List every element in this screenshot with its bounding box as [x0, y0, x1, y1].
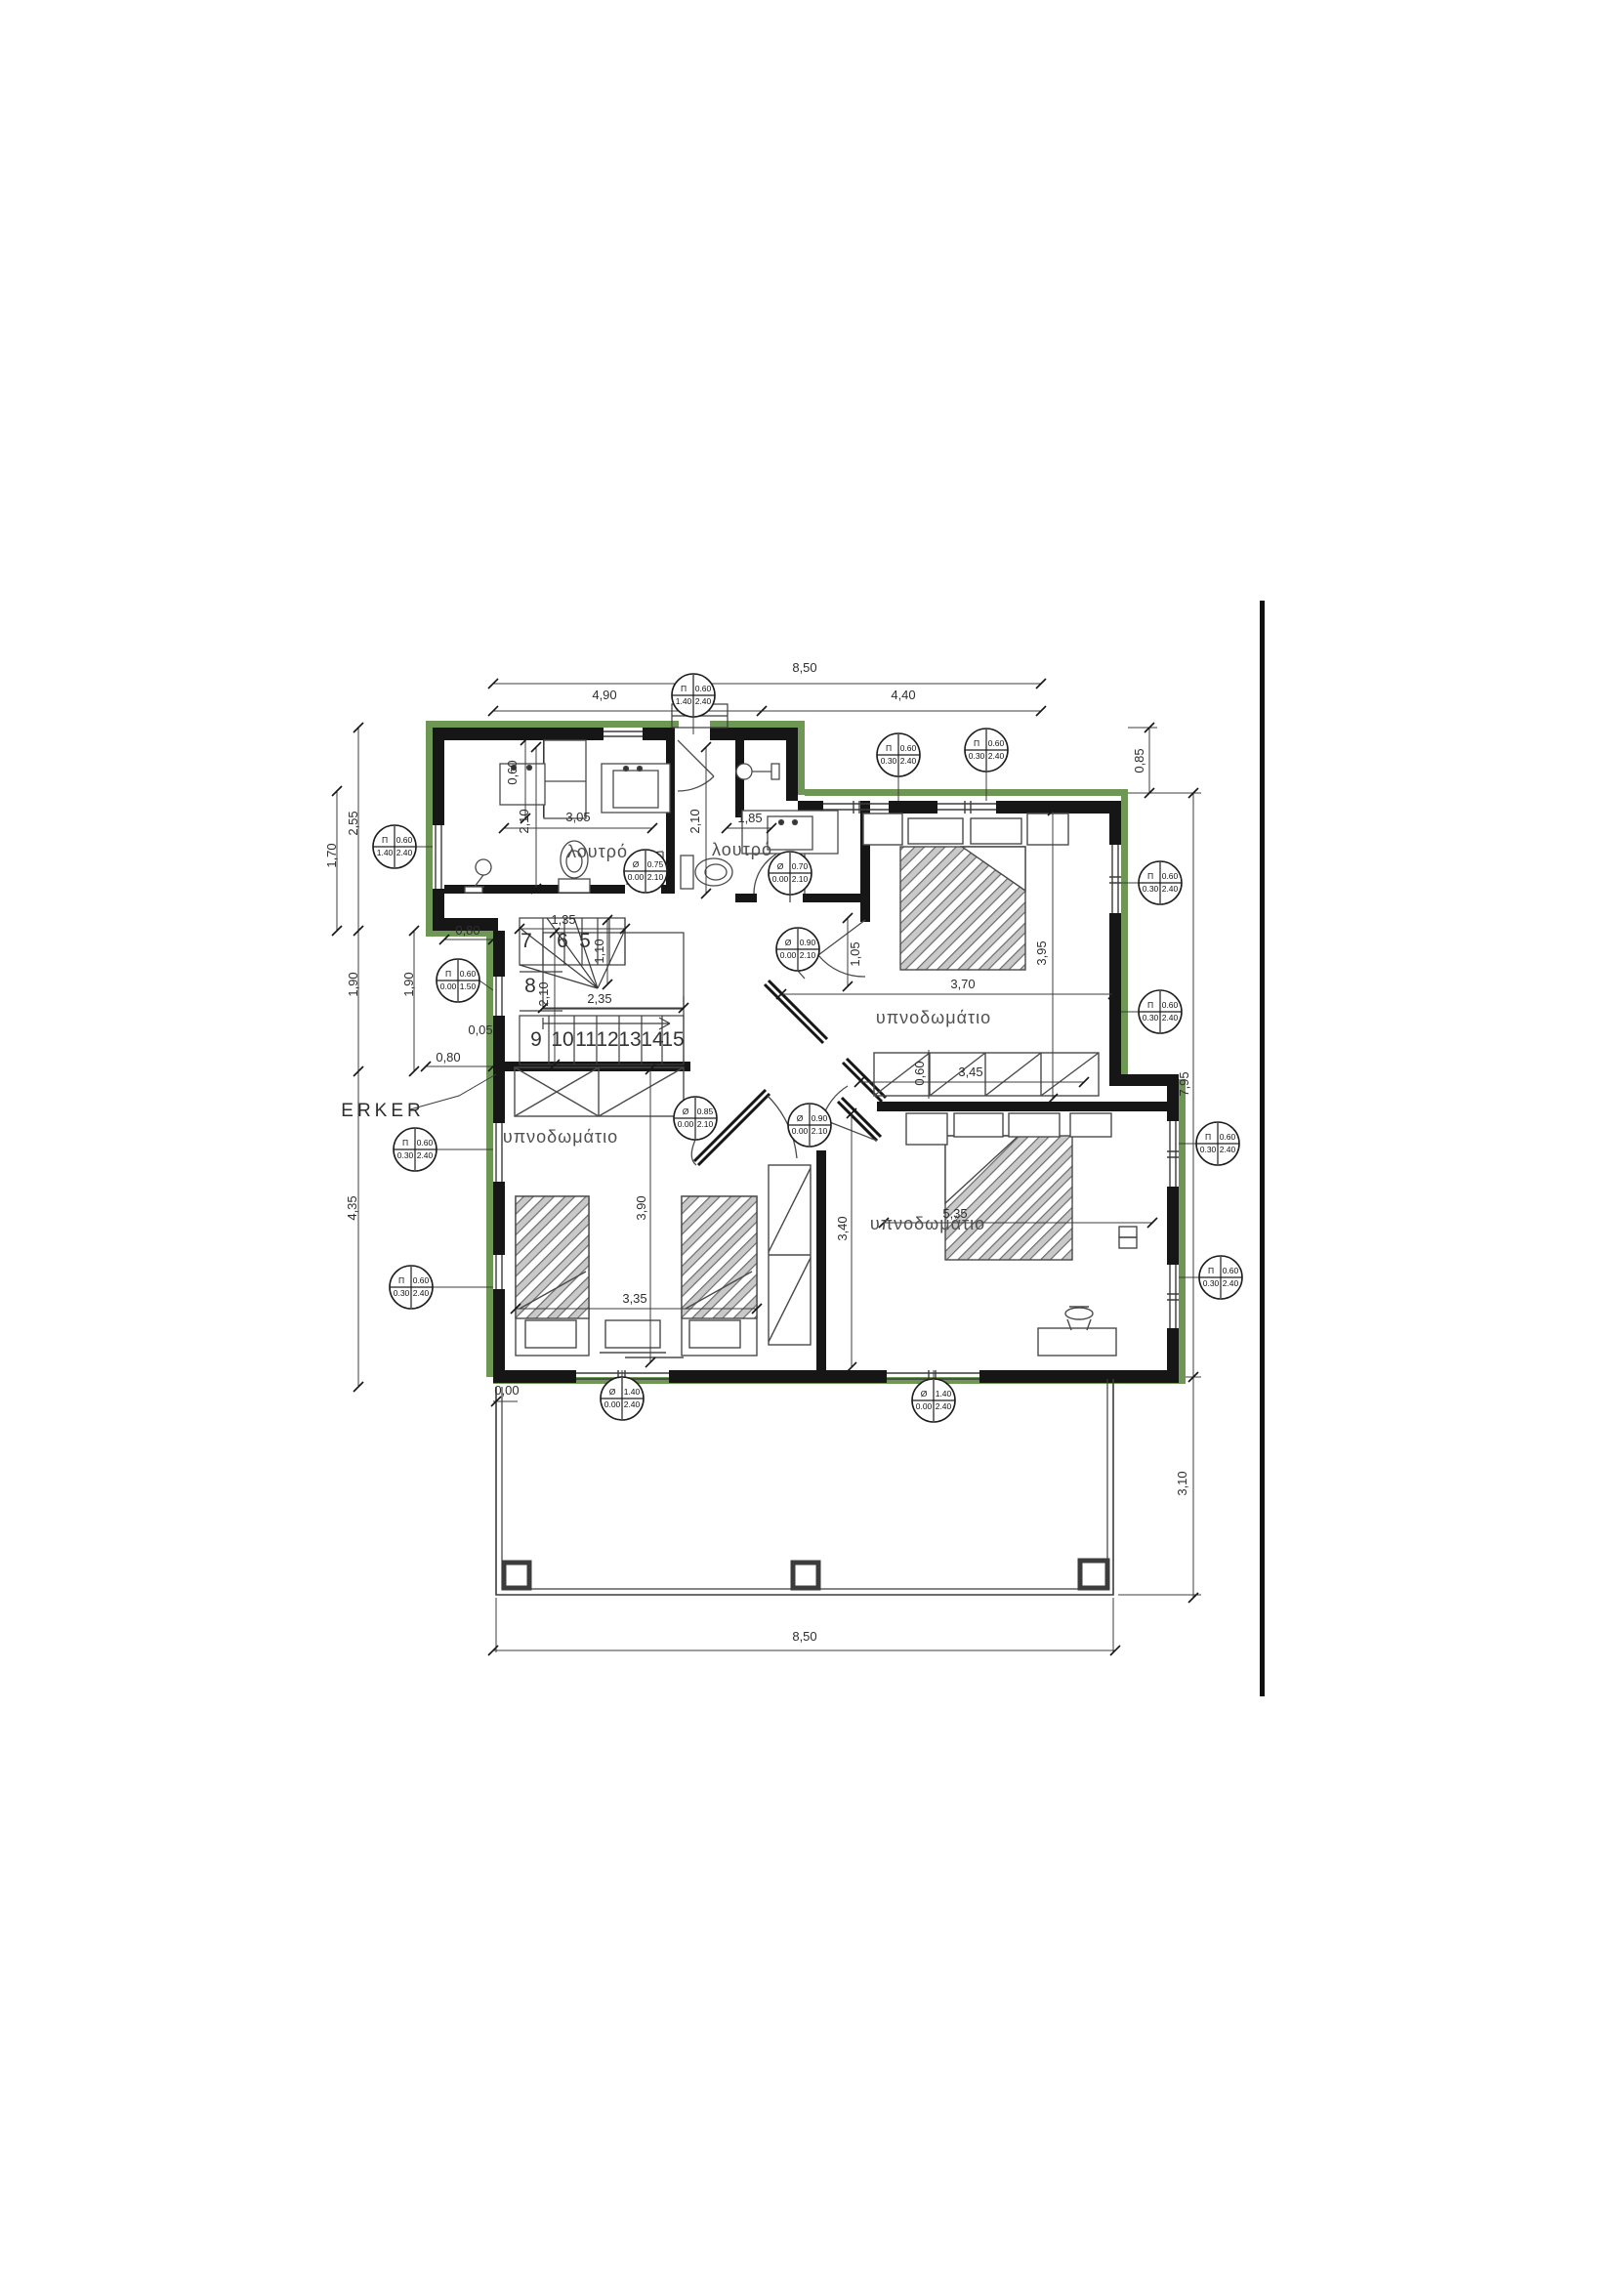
- stair-number: 5: [579, 930, 591, 952]
- marker-height: 2.40: [413, 1288, 430, 1298]
- marker-height: 2.40: [1162, 884, 1179, 894]
- dimension-text: 2,10: [687, 809, 702, 833]
- dimension-text: 8,50: [792, 660, 816, 675]
- marker-sill: 1.40: [377, 848, 394, 857]
- marker-width: 0.90: [812, 1113, 828, 1123]
- marker-height: 2.10: [812, 1126, 828, 1136]
- nightstand: [1027, 814, 1068, 845]
- dimension-text: 1,70: [324, 843, 339, 867]
- dimension-text: 1,35: [551, 912, 575, 927]
- marker-symbol: Π: [1147, 871, 1153, 881]
- marker-symbol: Π: [402, 1138, 408, 1148]
- room-label: υπνοδωμάτιο: [870, 1214, 985, 1233]
- dimension-text: 1,05: [848, 941, 862, 966]
- dimension-text: 2,35: [587, 991, 611, 1006]
- marker-symbol: Π: [1147, 1000, 1153, 1010]
- marker-width: 0.60: [695, 684, 712, 693]
- stair-number: 11: [575, 1028, 597, 1051]
- dimension-text: 2,55: [346, 811, 360, 835]
- room-label: λουτρό: [567, 842, 628, 861]
- door-marker: Ø0.750.002.10: [624, 850, 667, 893]
- window-marker: Π0.600.302.40: [1139, 861, 1182, 904]
- marker-symbol: Π: [445, 969, 451, 979]
- dimension-text: 2,10: [536, 981, 551, 1006]
- stair-number: 7: [521, 930, 532, 952]
- terrace-column: [504, 1563, 529, 1588]
- marker-height: 2.40: [936, 1401, 952, 1411]
- marker-sill: 0.00: [772, 874, 789, 884]
- marker-symbol: Ø: [777, 861, 784, 871]
- marker-symbol: Ø: [797, 1113, 804, 1123]
- marker-width: 0.70: [792, 861, 809, 871]
- pillow: [971, 818, 1021, 844]
- dimension-text: 2,10: [517, 809, 531, 833]
- marker-width: 0.60: [988, 738, 1005, 748]
- marker-height: 2.40: [1220, 1145, 1236, 1154]
- marker-symbol: Π: [974, 738, 979, 748]
- paper-background: [0, 0, 1624, 2296]
- marker-sill: 0.30: [1200, 1145, 1217, 1154]
- marker-symbol: Ø: [921, 1389, 928, 1398]
- dimension-text: 0,60: [912, 1061, 927, 1085]
- marker-symbol: Π: [886, 743, 892, 753]
- dimension-text: 3,45: [958, 1065, 982, 1079]
- marker-symbol: Ø: [633, 859, 640, 869]
- door-marker: Ø1.400.002.40: [912, 1379, 955, 1422]
- marker-width: 0.60: [900, 743, 917, 753]
- marker-width: 0.60: [396, 835, 413, 845]
- room-label: υπνοδωμάτιο: [876, 1008, 991, 1027]
- marker-height: 2.40: [900, 756, 917, 766]
- marker-width: 0.60: [1162, 871, 1179, 881]
- marker-width: 0.60: [413, 1275, 430, 1285]
- marker-sill: 0.00: [916, 1401, 933, 1411]
- desk: [1038, 1328, 1116, 1356]
- marker-height: 2.40: [988, 751, 1005, 761]
- dimension-text: 7,95: [1177, 1071, 1191, 1096]
- marker-height: 2.40: [1223, 1278, 1239, 1288]
- dimension-text: 3,70: [950, 977, 975, 991]
- dimension-text: 1,90: [346, 972, 360, 996]
- stool: [1065, 1308, 1093, 1319]
- toilet-tank: [681, 856, 693, 889]
- marker-sill: 0.00: [678, 1119, 694, 1129]
- marker-height: 2.40: [396, 848, 413, 857]
- marker-width: 1.40: [624, 1387, 641, 1397]
- window-marker: Π0.600.302.40: [1196, 1122, 1239, 1165]
- marker-height: 2.40: [1162, 1013, 1179, 1023]
- door-marker: Ø0.900.002.10: [776, 928, 819, 971]
- dimension-text: 8,50: [792, 1629, 816, 1644]
- dimension-text: 0,85: [1132, 748, 1146, 772]
- dimension-text: 4,90: [592, 688, 616, 702]
- pillow: [908, 818, 963, 844]
- window-marker: Π0.600.302.40: [877, 733, 920, 776]
- dimension-text: 3,40: [835, 1216, 850, 1240]
- marker-sill: 0.30: [1143, 1013, 1159, 1023]
- sink: [613, 771, 658, 808]
- room-label: υπνοδωμάτιο: [503, 1127, 618, 1147]
- pillow: [954, 1113, 1003, 1137]
- stair-number: 13: [618, 1028, 641, 1051]
- marker-height: 2.40: [695, 696, 712, 706]
- marker-sill: 0.30: [397, 1150, 414, 1160]
- dimension-text: 0,60: [505, 760, 520, 784]
- marker-sill: 0.00: [440, 981, 457, 991]
- stair-number: 8: [524, 975, 536, 997]
- nightstand: [863, 814, 902, 845]
- marker-symbol: Π: [1205, 1132, 1211, 1142]
- marker-sill: 0.30: [881, 756, 897, 766]
- pillow: [1009, 1113, 1060, 1137]
- marker-width: 0.60: [1220, 1132, 1236, 1142]
- dimension-text: 0,80: [436, 1050, 460, 1065]
- marker-width: 1.40: [936, 1389, 952, 1398]
- stair-number: 10: [551, 1028, 573, 1051]
- window-marker: Π0.600.302.40: [394, 1128, 437, 1171]
- marker-symbol: Ø: [785, 938, 792, 947]
- floor-plan-canvas: 8,504,904,400,857,953,108,502,551,701,90…: [0, 0, 1624, 2296]
- pillow: [525, 1320, 576, 1348]
- dimension-text: 1,90: [401, 972, 416, 996]
- marker-sill: 0.00: [604, 1399, 621, 1409]
- marker-symbol: Π: [1208, 1266, 1214, 1275]
- dimension-text: 3,90: [634, 1195, 648, 1220]
- window-marker: Π0.600.302.40: [965, 729, 1008, 772]
- dimension-text: 0,00: [494, 1383, 519, 1398]
- dimension-text: 3,95: [1034, 940, 1049, 965]
- dimension-text: 3,05: [565, 810, 590, 824]
- marker-height: 2.10: [697, 1119, 714, 1129]
- marker-sill: 0.30: [1143, 884, 1159, 894]
- marker-height: 2.40: [417, 1150, 434, 1160]
- marker-sill: 0.00: [628, 872, 645, 882]
- marker-width: 0.90: [800, 938, 816, 947]
- marker-width: 0.60: [417, 1138, 434, 1148]
- door-marker: Ø0.700.002.10: [769, 852, 812, 895]
- marker-symbol: Π: [382, 835, 388, 845]
- marker-width: 0.60: [1223, 1266, 1239, 1275]
- marker-sill: 0.00: [780, 950, 797, 960]
- dimension-text: 0,05: [468, 1023, 492, 1037]
- nightstand: [605, 1320, 660, 1348]
- erker-label: ERKER: [341, 1101, 424, 1121]
- marker-height: 2.10: [792, 874, 809, 884]
- marker-width: 0.75: [647, 859, 664, 869]
- dimension-text: 0,80: [455, 923, 479, 938]
- marker-sill: 1.40: [676, 696, 692, 706]
- marker-height: 1.50: [460, 981, 477, 991]
- stair-number: 15: [661, 1028, 684, 1051]
- window-marker: Π0.600.302.40: [1139, 990, 1182, 1033]
- window-marker: Π0.600.001.50: [437, 959, 479, 1002]
- nightstand: [1070, 1113, 1111, 1137]
- dimension-text: 4,35: [345, 1195, 359, 1220]
- toilet-tank: [559, 879, 590, 893]
- marker-sill: 0.30: [969, 751, 985, 761]
- room-label: λουτρό: [712, 840, 772, 859]
- dimension-text: 1,10: [592, 939, 606, 963]
- marker-height: 2.40: [624, 1399, 641, 1409]
- property-line: [1260, 601, 1265, 1696]
- marker-width: 0.60: [460, 969, 477, 979]
- dimension-text: 1,85: [737, 811, 762, 825]
- marker-width: 0.60: [1162, 1000, 1179, 1010]
- stair-number: 6: [557, 930, 568, 952]
- dimension-text: 4,40: [891, 688, 915, 702]
- window-marker: Π0.601.402.40: [373, 825, 416, 868]
- terrace-column: [1080, 1561, 1107, 1588]
- marker-sill: 0.30: [394, 1288, 410, 1298]
- door-marker: Ø0.850.002.10: [674, 1097, 717, 1140]
- window-marker: Π0.600.302.40: [390, 1266, 433, 1309]
- marker-height: 2.10: [800, 950, 816, 960]
- sink: [768, 816, 812, 850]
- stair-number: 9: [530, 1028, 542, 1051]
- window-marker: Π0.601.402.40: [672, 674, 715, 717]
- drawing-page: 8,504,904,400,857,953,108,502,551,701,90…: [0, 0, 1624, 2296]
- marker-symbol: Ø: [609, 1387, 616, 1397]
- marker-width: 0.85: [697, 1106, 714, 1116]
- marker-height: 2.10: [647, 872, 664, 882]
- window-marker: Π0.600.302.40: [1199, 1256, 1242, 1299]
- marker-symbol: Π: [681, 684, 687, 693]
- marker-symbol: Π: [398, 1275, 404, 1285]
- door-marker: Ø0.900.002.10: [788, 1104, 831, 1147]
- terrace-column: [793, 1563, 818, 1588]
- shower-head: [476, 859, 491, 875]
- marker-symbol: Ø: [683, 1106, 689, 1116]
- stair-number: 12: [596, 1028, 618, 1051]
- pillow: [689, 1320, 740, 1348]
- dimension-text: 3,35: [622, 1291, 646, 1306]
- door-marker: Ø1.400.002.40: [601, 1377, 644, 1420]
- shower-head: [736, 764, 752, 779]
- marker-sill: 0.30: [1203, 1278, 1220, 1288]
- dimension-text: 3,10: [1175, 1471, 1189, 1495]
- marker-sill: 0.00: [792, 1126, 809, 1136]
- nightstand: [906, 1113, 947, 1145]
